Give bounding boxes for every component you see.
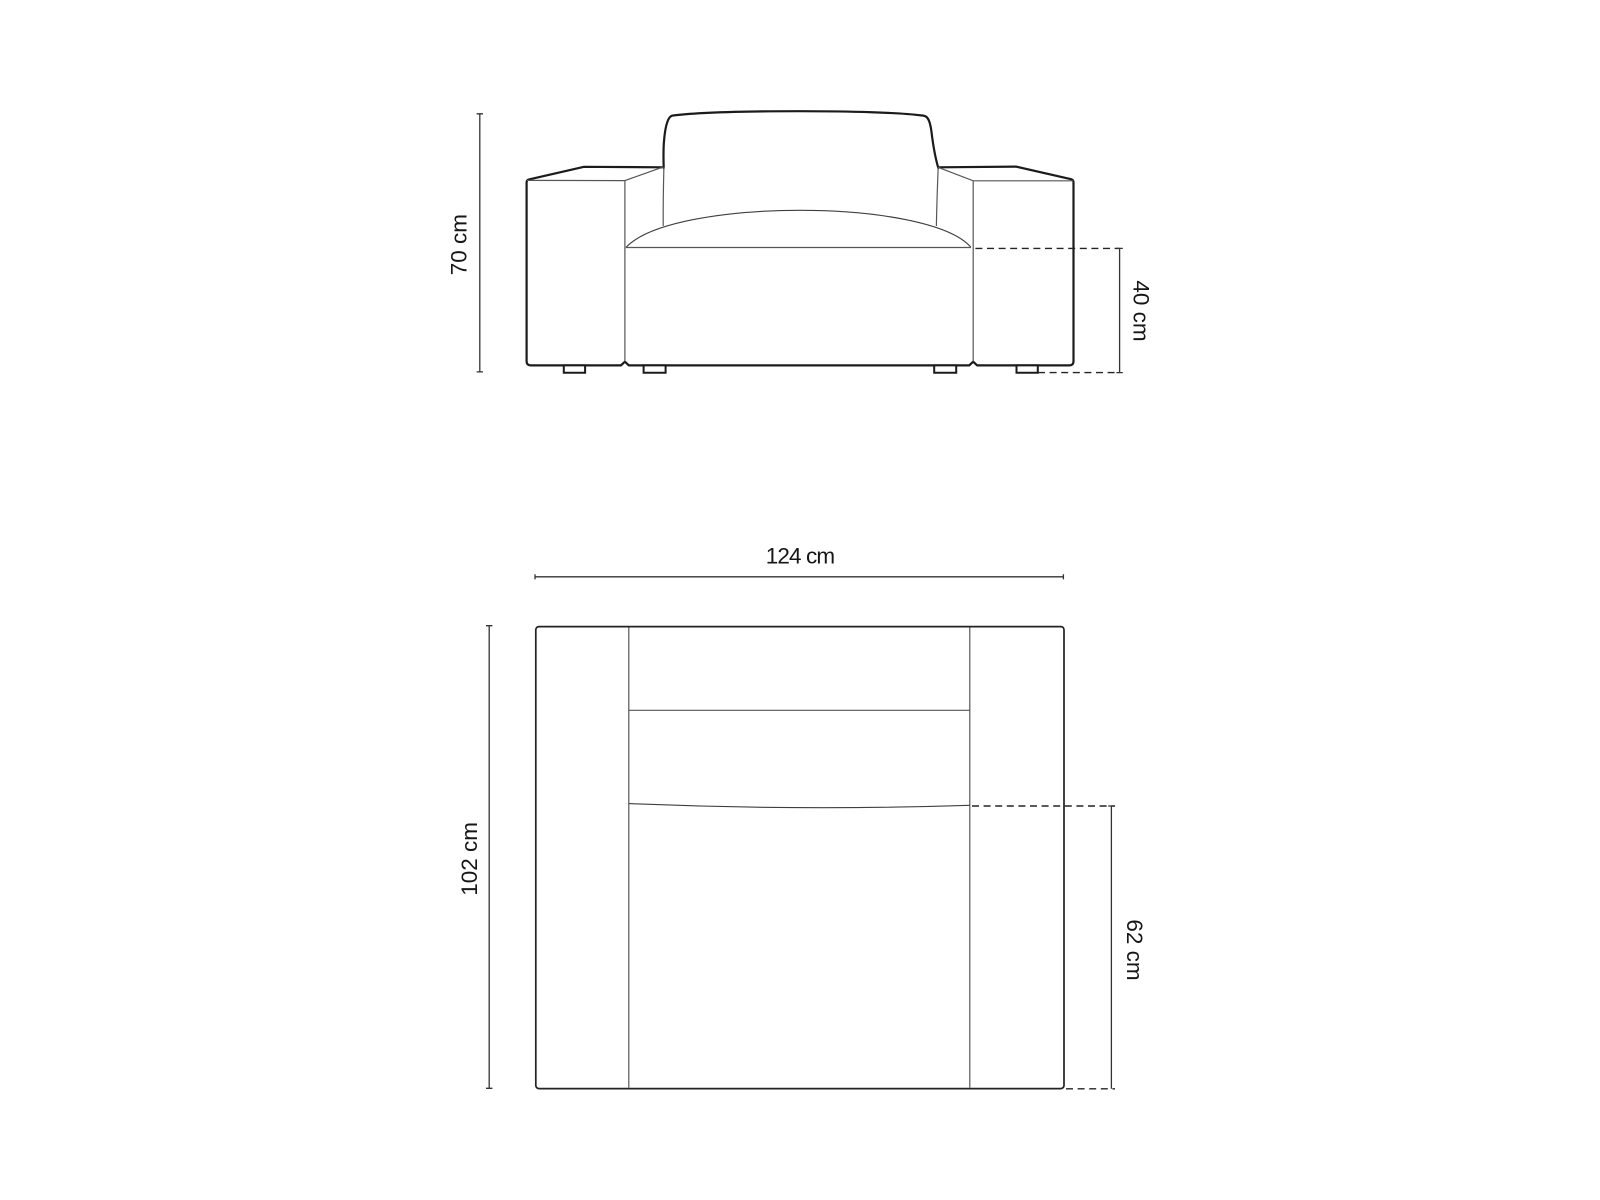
svg-text:70 cm: 70 cm (447, 214, 472, 275)
svg-text:40 cm: 40 cm (1128, 280, 1153, 341)
svg-text:102 cm: 102 cm (457, 822, 482, 896)
svg-text:62 cm: 62 cm (1122, 919, 1147, 980)
svg-text:124 cm: 124 cm (766, 544, 835, 569)
